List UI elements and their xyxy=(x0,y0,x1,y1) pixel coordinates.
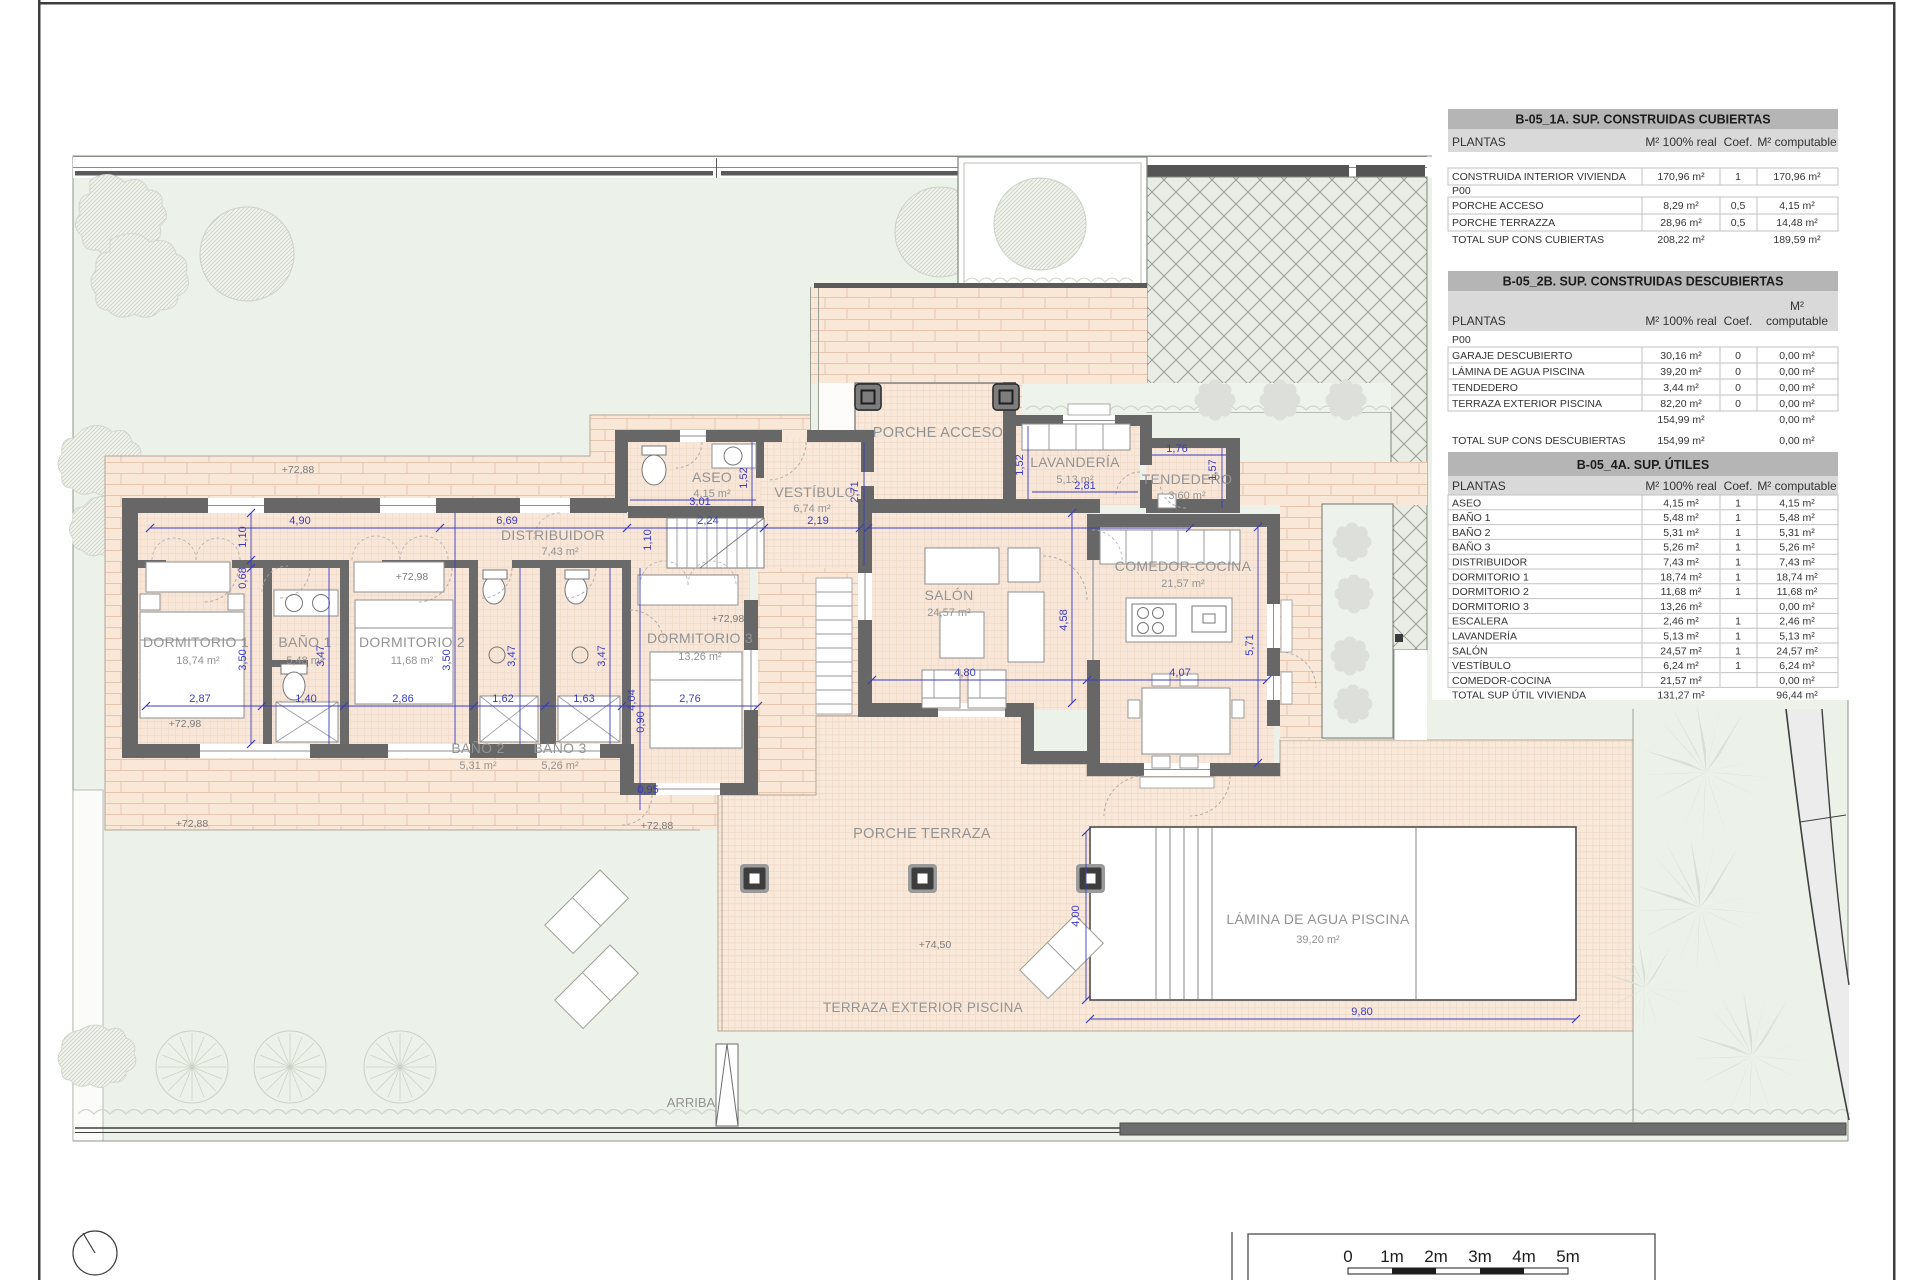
svg-text:+72,98: +72,98 xyxy=(712,613,745,625)
svg-text:BAÑO 1: BAÑO 1 xyxy=(1452,511,1491,524)
svg-text:5,31 m²: 5,31 m² xyxy=(1663,527,1699,539)
svg-text:2,87: 2,87 xyxy=(189,693,210,705)
svg-text:11,68 m²: 11,68 m² xyxy=(1661,586,1702,598)
svg-text:2,46 m²: 2,46 m² xyxy=(1779,616,1815,628)
svg-text:39,20 m²: 39,20 m² xyxy=(1296,934,1340,946)
svg-text:3,50: 3,50 xyxy=(237,649,249,670)
svg-text:M² 100% real: M² 100% real xyxy=(1645,314,1716,328)
svg-text:1: 1 xyxy=(1735,497,1741,509)
svg-text:4,90: 4,90 xyxy=(289,515,310,527)
svg-text:14,48 m²: 14,48 m² xyxy=(1776,217,1818,229)
svg-text:DORMITORIO 3: DORMITORIO 3 xyxy=(1452,601,1529,613)
svg-text:30,16 m²: 30,16 m² xyxy=(1660,350,1702,362)
svg-text:0,00 m²: 0,00 m² xyxy=(1779,414,1815,426)
svg-text:B-05_4A. SUP. ÚTILES: B-05_4A. SUP. ÚTILES xyxy=(1577,457,1709,472)
svg-text:DORMITORIO 2: DORMITORIO 2 xyxy=(359,634,465,650)
svg-text:SALÓN: SALÓN xyxy=(925,587,974,603)
svg-text:2,24: 2,24 xyxy=(697,515,718,527)
svg-text:4,15 m²: 4,15 m² xyxy=(1779,497,1815,509)
svg-text:COMEDOR-COCINA: COMEDOR-COCINA xyxy=(1115,558,1252,574)
svg-text:TOTAL SUP CONS CUBIERTAS: TOTAL SUP CONS CUBIERTAS xyxy=(1452,234,1604,246)
svg-text:PLANTAS: PLANTAS xyxy=(1452,135,1506,149)
svg-text:0,00 m²: 0,00 m² xyxy=(1779,366,1815,378)
svg-text:28,96 m²: 28,96 m² xyxy=(1660,217,1702,229)
svg-text:154,99 m²: 154,99 m² xyxy=(1657,414,1705,426)
svg-text:1: 1 xyxy=(1735,660,1741,672)
svg-text:154,99 m²: 154,99 m² xyxy=(1657,435,1705,447)
svg-text:PORCHE ACCESO: PORCHE ACCESO xyxy=(873,425,1003,441)
svg-text:4,15 m²: 4,15 m² xyxy=(1663,497,1699,509)
svg-text:computable: computable xyxy=(1766,314,1828,328)
svg-text:1,40: 1,40 xyxy=(295,693,316,705)
svg-text:11,68 m²: 11,68 m² xyxy=(391,655,434,667)
svg-text:5,13 m²: 5,13 m² xyxy=(1663,631,1699,643)
svg-text:170,96 m²: 170,96 m² xyxy=(1773,171,1821,183)
svg-text:LÁMINA DE AGUA PISCINA: LÁMINA DE AGUA PISCINA xyxy=(1452,365,1584,378)
svg-text:5m: 5m xyxy=(1556,1247,1580,1266)
svg-text:0: 0 xyxy=(1735,350,1741,362)
svg-text:1,10: 1,10 xyxy=(237,526,249,547)
svg-text:PORCHE TERRAZZA: PORCHE TERRAZZA xyxy=(1452,217,1555,229)
svg-text:11,68 m²: 11,68 m² xyxy=(1777,586,1818,598)
svg-text:VESTÍBULO: VESTÍBULO xyxy=(1452,659,1511,672)
svg-text:DORMITORIO 3: DORMITORIO 3 xyxy=(647,630,753,646)
svg-text:189,59 m²: 189,59 m² xyxy=(1773,234,1821,246)
svg-text:21,57 m²: 21,57 m² xyxy=(1161,578,1205,590)
svg-text:5,26 m²: 5,26 m² xyxy=(1663,542,1699,554)
svg-text:TERRAZA EXTERIOR PISCINA: TERRAZA EXTERIOR PISCINA xyxy=(1452,398,1602,410)
svg-text:ESCALERA: ESCALERA xyxy=(1452,616,1508,628)
svg-text:M² 100% real: M² 100% real xyxy=(1645,479,1716,493)
svg-text:4,00: 4,00 xyxy=(1070,905,1082,926)
svg-text:BAÑO 3: BAÑO 3 xyxy=(533,740,586,756)
svg-text:+72,98: +72,98 xyxy=(396,571,429,583)
svg-text:18,74 m²: 18,74 m² xyxy=(1776,571,1818,583)
svg-text:PORCHE TERRAZA: PORCHE TERRAZA xyxy=(853,826,991,842)
svg-text:BAÑO 2: BAÑO 2 xyxy=(451,740,504,756)
svg-text:BAÑO 2: BAÑO 2 xyxy=(1452,526,1491,539)
svg-text:7,43 m²: 7,43 m² xyxy=(1779,557,1815,569)
svg-text:3,47: 3,47 xyxy=(506,645,518,666)
svg-text:M² 100% real: M² 100% real xyxy=(1645,135,1716,149)
svg-text:4,80: 4,80 xyxy=(954,667,975,679)
svg-text:208,22 m²: 208,22 m² xyxy=(1657,234,1705,246)
svg-text:170,96 m²: 170,96 m² xyxy=(1657,171,1705,183)
svg-text:+72,88: +72,88 xyxy=(282,464,315,476)
svg-text:P00: P00 xyxy=(1452,334,1471,346)
svg-text:6,24 m²: 6,24 m² xyxy=(1663,660,1699,672)
svg-text:1,57: 1,57 xyxy=(1207,459,1219,480)
svg-text:1: 1 xyxy=(1735,645,1741,657)
svg-text:6,74 m²: 6,74 m² xyxy=(793,503,831,515)
svg-text:4,04: 4,04 xyxy=(626,689,638,710)
svg-text:M² computable: M² computable xyxy=(1757,135,1837,149)
svg-text:0,00 m²: 0,00 m² xyxy=(1779,675,1815,687)
svg-text:2,76: 2,76 xyxy=(679,693,700,705)
svg-text:5,31 m²: 5,31 m² xyxy=(459,760,497,772)
svg-text:0: 0 xyxy=(1735,382,1741,394)
svg-text:CONSTRUIDA INTERIOR VIVIENDA: CONSTRUIDA INTERIOR VIVIENDA xyxy=(1452,171,1626,183)
svg-text:1,10: 1,10 xyxy=(642,529,654,550)
svg-text:LAVANDERÍA: LAVANDERÍA xyxy=(1030,454,1120,470)
svg-text:PLANTAS: PLANTAS xyxy=(1452,314,1506,328)
svg-text:GARAJE DESCUBIERTO: GARAJE DESCUBIERTO xyxy=(1452,350,1572,362)
svg-text:+72,88: +72,88 xyxy=(176,818,209,830)
svg-text:3,44 m²: 3,44 m² xyxy=(1663,382,1699,394)
svg-text:6,24 m²: 6,24 m² xyxy=(1779,660,1815,672)
svg-text:DISTRIBUIDOR: DISTRIBUIDOR xyxy=(1452,557,1528,569)
svg-text:TENDEDERO: TENDEDERO xyxy=(1452,382,1518,394)
svg-text:0,00 m²: 0,00 m² xyxy=(1779,350,1815,362)
svg-text:2,71: 2,71 xyxy=(849,481,861,502)
svg-text:SALÓN: SALÓN xyxy=(1452,644,1488,657)
svg-text:DISTRIBUIDOR: DISTRIBUIDOR xyxy=(501,527,605,543)
svg-text:1,52: 1,52 xyxy=(1014,454,1026,475)
svg-text:B-05_2B. SUP. CONSTRUIDAS DESC: B-05_2B. SUP. CONSTRUIDAS DESCUBIERTAS xyxy=(1503,275,1784,289)
svg-text:1,76: 1,76 xyxy=(1166,443,1187,455)
svg-text:3,01: 3,01 xyxy=(689,496,710,508)
svg-text:24,57 m²: 24,57 m² xyxy=(1776,645,1818,657)
svg-text:0,5: 0,5 xyxy=(1731,200,1746,212)
svg-text:5,26 m²: 5,26 m² xyxy=(541,760,579,772)
svg-text:PLANTAS: PLANTAS xyxy=(1452,479,1506,493)
svg-text:24,57 m²: 24,57 m² xyxy=(1660,645,1702,657)
svg-text:1: 1 xyxy=(1735,616,1741,628)
svg-text:7,43 m²: 7,43 m² xyxy=(1663,557,1699,569)
svg-text:131,27 m²: 131,27 m² xyxy=(1657,690,1705,702)
svg-text:0,00 m²: 0,00 m² xyxy=(1779,601,1815,613)
svg-text:0,5: 0,5 xyxy=(1731,217,1746,229)
svg-text:VESTÍBULO: VESTÍBULO xyxy=(774,484,855,500)
svg-text:2m: 2m xyxy=(1424,1247,1448,1266)
svg-text:LAVANDERÍA: LAVANDERÍA xyxy=(1452,630,1517,643)
svg-text:2,86: 2,86 xyxy=(392,693,413,705)
svg-text:0,00 m²: 0,00 m² xyxy=(1779,382,1815,394)
svg-text:5,48 m²: 5,48 m² xyxy=(1779,512,1815,524)
svg-text:8,29 m²: 8,29 m² xyxy=(1663,200,1699,212)
svg-text:LÁMINA DE AGUA PISCINA: LÁMINA DE AGUA PISCINA xyxy=(1226,911,1410,927)
svg-text:3,60 m²: 3,60 m² xyxy=(1168,490,1206,502)
svg-text:96,44 m²: 96,44 m² xyxy=(1776,690,1818,702)
svg-text:ARRIBA: ARRIBA xyxy=(667,1095,716,1110)
svg-text:24,57 m²: 24,57 m² xyxy=(927,607,971,619)
svg-text:0,68: 0,68 xyxy=(237,567,249,588)
svg-text:3,50: 3,50 xyxy=(441,649,453,670)
svg-text:BAÑO 3: BAÑO 3 xyxy=(1452,541,1491,554)
svg-text:B-05_1A. SUP. CONSTRUIDAS CUBI: B-05_1A. SUP. CONSTRUIDAS CUBIERTAS xyxy=(1515,113,1770,127)
svg-text:COMEDOR-COCINA: COMEDOR-COCINA xyxy=(1452,675,1551,687)
svg-text:7,43 m²: 7,43 m² xyxy=(541,546,579,558)
svg-text:21,57 m²: 21,57 m² xyxy=(1660,675,1702,687)
svg-text:+72,88: +72,88 xyxy=(641,820,674,832)
svg-text:5,26 m²: 5,26 m² xyxy=(1779,542,1815,554)
svg-text:TOTAL SUP ÚTIL VIVIENDA: TOTAL SUP ÚTIL VIVIENDA xyxy=(1452,689,1586,702)
svg-text:0,00 m²: 0,00 m² xyxy=(1779,398,1815,410)
svg-text:M² computable: M² computable xyxy=(1757,479,1837,493)
svg-text:5,48 m²: 5,48 m² xyxy=(1663,512,1699,524)
svg-text:Coef.: Coef. xyxy=(1724,314,1753,328)
svg-text:TERRAZA EXTERIOR PISCINA: TERRAZA EXTERIOR PISCINA xyxy=(823,1000,1023,1015)
svg-text:Coef.: Coef. xyxy=(1724,479,1753,493)
svg-text:4,07: 4,07 xyxy=(1169,667,1190,679)
svg-text:0: 0 xyxy=(1735,398,1741,410)
svg-text:5,13 m²: 5,13 m² xyxy=(1779,631,1815,643)
svg-text:13,26 m²: 13,26 m² xyxy=(1660,601,1702,613)
svg-text:1: 1 xyxy=(1735,542,1741,554)
svg-text:6,69: 6,69 xyxy=(496,515,517,527)
svg-text:2,46 m²: 2,46 m² xyxy=(1663,616,1699,628)
svg-text:TOTAL SUP CONS DESCUBIERTAS: TOTAL SUP CONS DESCUBIERTAS xyxy=(1452,435,1626,447)
svg-text:0: 0 xyxy=(1735,366,1741,378)
svg-text:39,20 m²: 39,20 m² xyxy=(1660,366,1702,378)
svg-text:1,52: 1,52 xyxy=(738,467,750,488)
svg-text:2,81: 2,81 xyxy=(1074,480,1095,492)
svg-text:1: 1 xyxy=(1735,171,1741,183)
svg-text:4,15 m²: 4,15 m² xyxy=(1779,200,1815,212)
svg-text:1: 1 xyxy=(1735,527,1741,539)
svg-text:4m: 4m xyxy=(1512,1247,1536,1266)
svg-text:2,19: 2,19 xyxy=(807,515,828,527)
svg-text:18,74 m²: 18,74 m² xyxy=(176,655,220,667)
svg-text:82,20 m²: 82,20 m² xyxy=(1660,398,1702,410)
svg-text:ASEO: ASEO xyxy=(1452,497,1481,509)
svg-text:1: 1 xyxy=(1735,512,1741,524)
svg-text:3m: 3m xyxy=(1468,1247,1492,1266)
svg-text:0: 0 xyxy=(1343,1247,1352,1266)
svg-text:1m: 1m xyxy=(1380,1247,1404,1266)
svg-text:+74,50: +74,50 xyxy=(919,939,952,951)
svg-text:PORCHE ACCESO: PORCHE ACCESO xyxy=(1452,200,1544,212)
svg-text:1: 1 xyxy=(1735,557,1741,569)
svg-text:13,26 m²: 13,26 m² xyxy=(678,651,722,663)
svg-text:1,62: 1,62 xyxy=(492,693,513,705)
svg-text:9,80: 9,80 xyxy=(1351,1006,1372,1018)
svg-text:P00: P00 xyxy=(1452,185,1471,197)
svg-text:DORMITORIO 1: DORMITORIO 1 xyxy=(1452,571,1529,583)
svg-text:3,47: 3,47 xyxy=(315,645,327,666)
svg-text:5,71: 5,71 xyxy=(1244,634,1256,655)
svg-text:18,74 m²: 18,74 m² xyxy=(1660,571,1702,583)
svg-text:4,58: 4,58 xyxy=(1058,609,1070,630)
svg-text:1,63: 1,63 xyxy=(573,693,594,705)
svg-text:ASEO: ASEO xyxy=(692,469,732,485)
svg-text:Coef.: Coef. xyxy=(1724,135,1753,149)
svg-text:0,90: 0,90 xyxy=(635,711,647,732)
svg-text:M²: M² xyxy=(1790,299,1804,313)
svg-text:1: 1 xyxy=(1735,631,1741,643)
svg-text:DORMITORIO 1: DORMITORIO 1 xyxy=(143,634,249,650)
svg-text:+72,98: +72,98 xyxy=(169,718,202,730)
svg-text:0,95: 0,95 xyxy=(637,784,658,796)
svg-text:1: 1 xyxy=(1735,586,1741,598)
svg-text:1: 1 xyxy=(1735,571,1741,583)
svg-text:DORMITORIO 2: DORMITORIO 2 xyxy=(1452,586,1529,598)
svg-text:3,47: 3,47 xyxy=(596,645,608,666)
svg-text:5,31 m²: 5,31 m² xyxy=(1779,527,1815,539)
svg-text:0,00 m²: 0,00 m² xyxy=(1779,435,1815,447)
